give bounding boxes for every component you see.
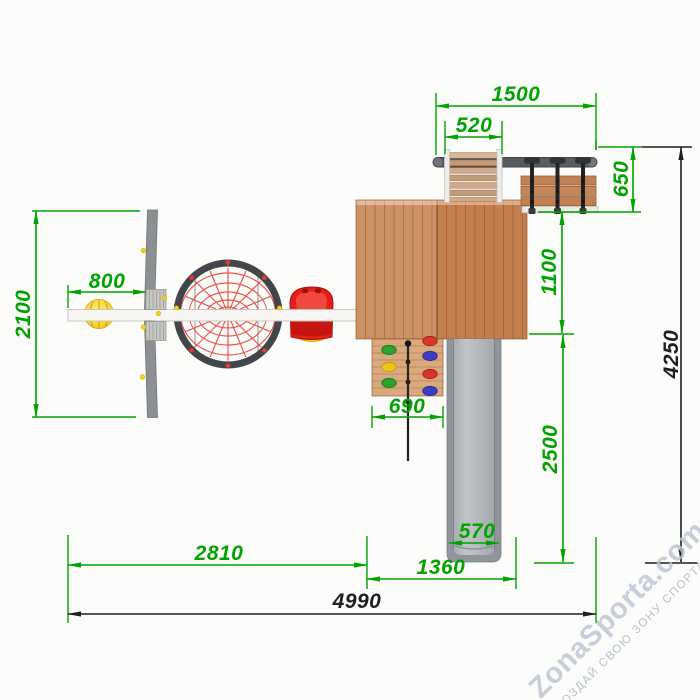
access-ladder [445, 150, 503, 203]
dim-overall-width: 4990 [68, 537, 596, 623]
dim-platform-side-depth: 1100 [529, 212, 574, 334]
dim-swing-zone-width: 2810 [68, 535, 367, 623]
dim-overall-depth: 4250 [642, 147, 698, 563]
dim-label-1360: 1360 [417, 556, 466, 579]
dim-label-520: 520 [456, 114, 493, 137]
dim-slide-run-depth: 2500 [534, 335, 574, 563]
swing-beam [68, 310, 358, 322]
dim-label-1100: 1100 [538, 248, 561, 295]
dim-ladder-width: 520 [445, 114, 502, 154]
watermark-brand: ZonaSporta.com [523, 515, 700, 700]
dim-label-690: 690 [389, 395, 426, 418]
dim-label-2100: 2100 [12, 290, 35, 340]
ladder-rail-left [445, 150, 450, 203]
dim-label-2810: 2810 [194, 542, 244, 565]
dim-label-650: 650 [610, 161, 633, 198]
ladder-rail-right [497, 150, 502, 203]
dim-label-4990: 4990 [332, 590, 382, 613]
tower-platform [356, 200, 527, 339]
dim-label-4250: 4250 [660, 330, 683, 380]
dim-label-2500: 2500 [539, 425, 562, 475]
dim-label-570: 570 [459, 520, 496, 543]
playground-top-view-drawing: 1500 520 650 1100 2500 [0, 0, 700, 700]
drawing-canvas: 1500 520 650 1100 2500 [0, 0, 700, 700]
watermark: ZonaSporta.com СОЗДАЙ СВОЮ ЗОНУ СПОРТА [523, 515, 700, 700]
dim-label-800: 800 [89, 270, 126, 293]
dim-label-1500: 1500 [492, 83, 541, 106]
